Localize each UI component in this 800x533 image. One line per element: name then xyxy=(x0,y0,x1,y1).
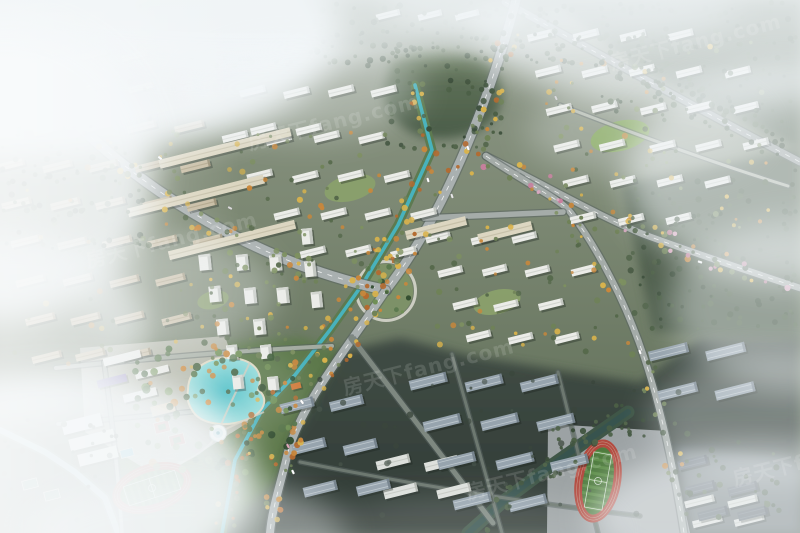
tree xyxy=(339,462,343,466)
tree xyxy=(307,263,311,267)
tree xyxy=(421,133,425,137)
tree xyxy=(485,127,489,131)
tree xyxy=(511,409,514,412)
tree xyxy=(364,305,369,310)
tree xyxy=(580,235,583,238)
tower-building xyxy=(301,228,315,248)
tree xyxy=(493,117,498,122)
tree xyxy=(240,150,243,153)
tree xyxy=(516,291,522,297)
tree xyxy=(379,309,382,312)
tree xyxy=(407,412,413,418)
tree xyxy=(551,324,556,329)
tree xyxy=(455,287,459,291)
tree xyxy=(614,403,619,408)
tree xyxy=(548,174,552,178)
tree xyxy=(393,236,399,242)
tree xyxy=(356,275,361,280)
tree xyxy=(456,165,460,169)
tree xyxy=(487,467,490,470)
tree xyxy=(556,198,559,201)
tree xyxy=(320,325,324,329)
tree xyxy=(422,114,426,118)
tree xyxy=(383,133,388,138)
tree xyxy=(555,211,559,215)
tree xyxy=(526,261,531,266)
tree xyxy=(429,169,434,174)
tree xyxy=(380,283,386,289)
tree xyxy=(628,267,634,273)
tree xyxy=(286,437,294,445)
tree xyxy=(592,424,595,427)
tree xyxy=(615,314,618,317)
tree xyxy=(629,351,635,357)
tree xyxy=(344,284,348,288)
tree xyxy=(280,272,283,275)
tree xyxy=(431,384,434,387)
tree xyxy=(508,224,514,230)
tree xyxy=(406,295,411,300)
tree xyxy=(375,237,380,242)
tree xyxy=(378,279,383,284)
tree xyxy=(494,237,498,241)
tree xyxy=(659,317,662,320)
tree xyxy=(302,280,306,284)
left-mist-veil xyxy=(0,0,240,533)
tree xyxy=(548,197,551,200)
tree xyxy=(580,428,586,434)
tree xyxy=(428,233,432,237)
tree xyxy=(437,342,443,348)
tree xyxy=(399,198,404,203)
tree xyxy=(341,225,345,229)
tree xyxy=(483,83,488,88)
tree xyxy=(620,427,623,430)
tree xyxy=(517,162,523,168)
tree xyxy=(402,145,406,149)
tree xyxy=(471,326,475,330)
tree xyxy=(373,299,378,304)
tree xyxy=(481,98,487,104)
tree xyxy=(320,165,324,169)
tree xyxy=(451,260,457,266)
tree xyxy=(653,365,657,369)
tree xyxy=(620,279,626,285)
tree xyxy=(272,254,276,258)
tree xyxy=(266,197,270,201)
tree xyxy=(489,88,495,94)
tree xyxy=(471,124,475,128)
tree xyxy=(485,247,489,251)
tree xyxy=(338,234,342,238)
tree xyxy=(345,358,349,362)
tree xyxy=(594,297,600,303)
tree xyxy=(594,420,598,424)
tree xyxy=(594,326,597,329)
tree xyxy=(295,253,301,259)
tree xyxy=(422,146,428,152)
tree xyxy=(418,188,422,192)
tree xyxy=(401,310,404,313)
tree xyxy=(615,230,620,235)
tree xyxy=(289,178,294,183)
tree xyxy=(393,425,397,429)
tree xyxy=(413,119,416,122)
tree xyxy=(481,147,486,152)
tree xyxy=(583,348,589,354)
tree xyxy=(470,171,474,175)
tree xyxy=(404,282,408,286)
tree xyxy=(365,284,370,289)
rendering-canvas: 房天下fang.com房天下fang.com房天下fang.com房天下fang… xyxy=(0,0,800,533)
tree xyxy=(498,99,504,105)
tree xyxy=(365,266,370,271)
tree xyxy=(455,68,458,71)
tree xyxy=(382,423,388,429)
tree xyxy=(642,434,645,437)
tree xyxy=(642,276,645,279)
tree xyxy=(322,386,327,391)
tree xyxy=(396,254,399,257)
tree xyxy=(384,256,389,261)
tree xyxy=(298,438,303,443)
tree xyxy=(382,237,386,241)
tree xyxy=(249,337,252,340)
tree xyxy=(528,183,534,189)
tree xyxy=(570,441,576,447)
tree xyxy=(292,421,297,426)
tree xyxy=(567,220,571,224)
tree xyxy=(592,262,596,266)
tree xyxy=(546,89,552,95)
tree xyxy=(357,153,362,158)
tree xyxy=(247,185,253,191)
tree xyxy=(385,141,390,146)
tree xyxy=(475,146,478,149)
tree xyxy=(325,316,331,322)
tree xyxy=(266,262,270,266)
tree xyxy=(531,455,534,458)
tree xyxy=(269,454,274,459)
tree xyxy=(486,226,490,230)
tree xyxy=(571,407,577,413)
tree xyxy=(579,224,582,227)
tree xyxy=(248,452,251,455)
tree xyxy=(286,426,290,430)
tree xyxy=(641,245,646,250)
tree xyxy=(354,316,359,321)
tree xyxy=(303,233,306,236)
tree xyxy=(476,152,481,157)
tree xyxy=(500,89,505,94)
fog-patch xyxy=(525,82,765,178)
tree xyxy=(287,262,293,268)
tree xyxy=(498,115,503,120)
tree xyxy=(318,203,324,209)
tree xyxy=(385,279,390,284)
tree xyxy=(433,150,439,156)
tree xyxy=(257,326,261,330)
tree xyxy=(400,231,405,236)
tree xyxy=(284,338,288,342)
tree xyxy=(580,193,583,196)
tree xyxy=(499,131,503,135)
tree xyxy=(396,295,400,299)
tree xyxy=(297,229,302,234)
tree xyxy=(290,464,293,467)
tree xyxy=(250,159,256,165)
tree xyxy=(478,114,483,119)
tree xyxy=(438,191,441,194)
tree xyxy=(372,311,378,317)
tree xyxy=(481,126,485,130)
tree xyxy=(436,289,442,295)
tree xyxy=(304,326,308,330)
tree xyxy=(482,379,488,385)
tree xyxy=(360,290,366,296)
tree xyxy=(592,336,597,341)
tree xyxy=(481,107,487,113)
tree xyxy=(359,261,364,266)
tree xyxy=(377,174,381,178)
tree xyxy=(531,379,535,383)
tree xyxy=(529,446,533,450)
tree xyxy=(479,409,483,413)
tree xyxy=(376,270,381,275)
tree xyxy=(450,322,456,328)
tree xyxy=(352,258,358,264)
tree xyxy=(434,193,437,196)
tree xyxy=(560,446,563,449)
tree xyxy=(328,160,332,164)
tree xyxy=(465,418,471,424)
tree xyxy=(337,297,342,302)
tree xyxy=(608,432,613,437)
tree xyxy=(274,248,280,254)
tree xyxy=(393,443,399,449)
tree xyxy=(368,188,373,193)
tree xyxy=(555,250,559,254)
tree xyxy=(543,332,547,336)
tree xyxy=(417,128,423,134)
tree xyxy=(659,325,663,329)
tree xyxy=(393,258,399,264)
tree xyxy=(329,337,334,342)
tree xyxy=(374,249,377,252)
tree xyxy=(331,374,334,377)
tree xyxy=(471,85,475,89)
tree xyxy=(514,332,518,336)
tree xyxy=(633,389,636,392)
tree xyxy=(530,187,534,191)
tower-building xyxy=(304,260,318,280)
tree xyxy=(537,191,540,194)
tree xyxy=(641,418,645,422)
tree xyxy=(513,291,516,294)
tree xyxy=(485,293,489,297)
tree xyxy=(547,275,553,281)
tree xyxy=(276,262,282,268)
tree xyxy=(490,122,493,125)
tree xyxy=(611,210,616,215)
tree xyxy=(277,332,281,336)
tree xyxy=(620,404,624,408)
tree xyxy=(481,164,487,170)
tree xyxy=(402,205,408,211)
tree xyxy=(372,291,378,297)
tree xyxy=(356,285,360,289)
tree xyxy=(420,92,425,97)
tree xyxy=(385,290,389,294)
tree xyxy=(463,136,466,139)
tree xyxy=(384,460,390,466)
tree xyxy=(244,440,249,445)
tree xyxy=(329,219,333,223)
tree xyxy=(426,126,432,132)
tree xyxy=(276,302,280,306)
tree xyxy=(354,250,357,253)
tree xyxy=(406,268,412,274)
tree xyxy=(311,409,316,414)
tree xyxy=(643,390,647,394)
tree xyxy=(624,422,628,426)
tree xyxy=(642,303,648,309)
tree xyxy=(268,431,275,438)
tree xyxy=(272,268,278,274)
tree xyxy=(479,87,484,92)
tree xyxy=(521,343,525,347)
tree xyxy=(592,227,597,232)
tree xyxy=(348,354,353,359)
tree xyxy=(632,310,638,316)
tree xyxy=(591,267,596,272)
tree xyxy=(483,142,489,148)
tree xyxy=(349,308,353,312)
tree xyxy=(371,285,374,288)
tree xyxy=(639,283,642,286)
tree xyxy=(651,370,654,373)
tree xyxy=(423,231,429,237)
tree xyxy=(274,462,278,466)
tree xyxy=(409,217,415,223)
tree xyxy=(652,260,657,265)
tree xyxy=(420,81,426,87)
tree xyxy=(627,430,632,435)
tree xyxy=(360,422,366,428)
tree xyxy=(662,248,668,254)
tree xyxy=(396,248,399,251)
tree xyxy=(430,265,435,270)
tree xyxy=(294,276,299,281)
tree xyxy=(631,251,635,255)
tree xyxy=(571,428,575,432)
tree xyxy=(349,277,355,283)
tree xyxy=(263,177,268,182)
tree xyxy=(284,451,288,455)
tree xyxy=(579,216,583,220)
tree xyxy=(670,271,676,277)
tree xyxy=(446,168,451,173)
tree xyxy=(278,424,286,432)
tree xyxy=(322,345,327,350)
tree xyxy=(571,271,574,274)
tree xyxy=(395,215,398,218)
tree xyxy=(556,426,561,431)
tree xyxy=(557,437,561,441)
tree xyxy=(394,307,399,312)
tree xyxy=(472,462,477,467)
tower-building xyxy=(310,291,324,311)
tree xyxy=(315,353,320,358)
tree xyxy=(424,64,427,67)
tree xyxy=(306,256,312,262)
tree xyxy=(239,169,245,175)
tree xyxy=(606,414,609,417)
tree xyxy=(627,224,632,229)
tree xyxy=(607,425,613,431)
tree xyxy=(413,252,417,256)
tree xyxy=(364,320,369,325)
tree xyxy=(576,240,579,243)
tree xyxy=(466,321,471,326)
tree xyxy=(412,146,417,151)
tree xyxy=(485,135,491,141)
tree xyxy=(381,272,387,278)
tree xyxy=(628,220,631,223)
tree xyxy=(591,380,595,384)
tree xyxy=(494,272,497,275)
tree xyxy=(469,387,472,390)
tree xyxy=(301,420,306,425)
tree xyxy=(459,322,464,327)
tree xyxy=(435,324,440,329)
tree xyxy=(453,144,458,149)
tree xyxy=(624,229,627,232)
tree xyxy=(627,427,630,430)
tree xyxy=(674,256,678,260)
tree xyxy=(317,406,323,412)
tree xyxy=(291,450,297,456)
tree xyxy=(409,181,415,187)
tree xyxy=(465,79,471,85)
tree xyxy=(551,335,556,340)
tree xyxy=(570,234,574,238)
tree xyxy=(446,87,452,93)
tree xyxy=(292,359,298,365)
tree xyxy=(448,78,454,84)
tree xyxy=(492,131,495,134)
tree xyxy=(588,489,591,492)
tree xyxy=(554,329,560,335)
tree xyxy=(297,262,301,266)
tree xyxy=(355,342,360,347)
tree xyxy=(657,292,661,296)
tree xyxy=(377,265,380,268)
tree xyxy=(563,284,566,287)
aerial-rendering: 房天下fang.com房天下fang.com房天下fang.com房天下fang… xyxy=(0,0,800,533)
tree xyxy=(493,112,498,117)
tree xyxy=(650,326,655,331)
tree xyxy=(314,279,318,283)
tree xyxy=(326,187,329,190)
tree xyxy=(466,91,471,96)
tree xyxy=(334,196,339,201)
tree xyxy=(478,309,483,314)
tree xyxy=(297,197,303,203)
tree xyxy=(626,341,630,345)
tree xyxy=(645,232,648,235)
tree xyxy=(309,382,313,386)
